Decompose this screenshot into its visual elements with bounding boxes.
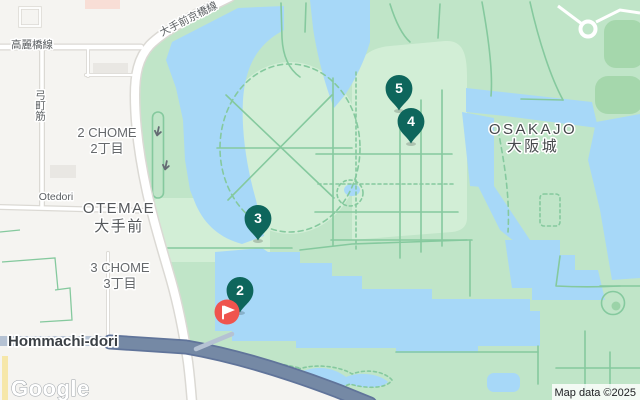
road-label-otedori: Otedori	[39, 191, 73, 203]
area-label-3chome-ja: 3丁目	[103, 276, 136, 291]
building-block	[85, 0, 120, 9]
pin-number: 5	[395, 80, 403, 96]
area-label-2chome-en: 2 CHOME	[77, 125, 137, 140]
map-data-attribution: Map data ©2025	[555, 387, 637, 399]
start-flag-marker[interactable]	[215, 300, 240, 325]
area-label-2chome-ja: 2丁目	[90, 141, 123, 156]
google-logo[interactable]: Google	[11, 376, 90, 400]
area-label-3chome-en: 3 CHOME	[90, 260, 150, 275]
building-block	[50, 165, 76, 178]
map-canvas[interactable]: 大手前京橋線 高麗橋線 弓町筋 Otedori 2 CHOME 2丁目 OTEM…	[0, 0, 640, 400]
area-label-otemae-en: OTEMAE	[83, 200, 155, 217]
pin-number: 2	[236, 282, 244, 298]
road-label-hommachi: Hommachi-dori	[8, 333, 118, 350]
park-pond-dot	[612, 302, 621, 311]
pin-number: 3	[254, 210, 262, 226]
pin-number: 4	[407, 113, 415, 129]
road-label-yumimachi: 弓町筋	[34, 89, 46, 121]
area-label-otemae-ja: 大手前	[94, 218, 144, 235]
road-label-koraibashi: 高麗橋線	[11, 38, 53, 51]
area-label-osakajo-ja: 大阪城	[507, 138, 560, 155]
area-label-osakajo-en: OSAKAJO	[489, 121, 577, 138]
